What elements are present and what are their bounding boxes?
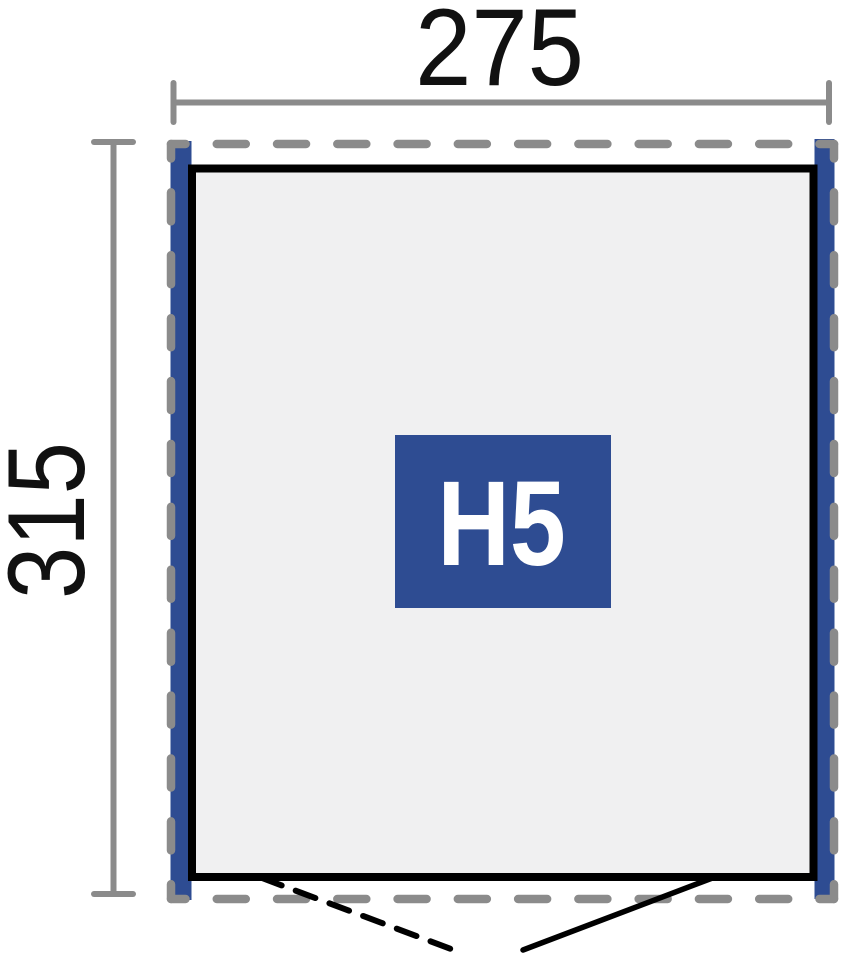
svg-text:275: 275 — [415, 0, 584, 109]
svg-text:H5: H5 — [437, 455, 565, 591]
svg-text:315: 315 — [0, 442, 108, 599]
